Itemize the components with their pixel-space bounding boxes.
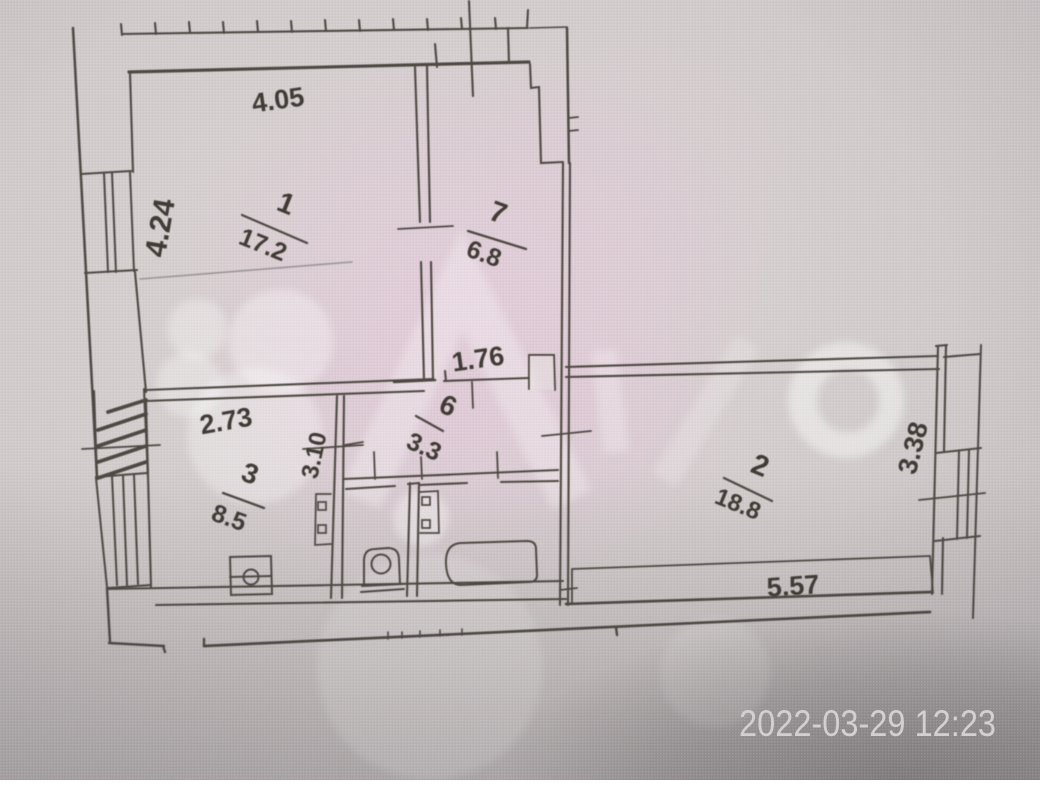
svg-text:5.57: 5.57 (766, 569, 821, 603)
svg-text:2022-03-29 12:23: 2022-03-29 12:23 (739, 703, 996, 744)
